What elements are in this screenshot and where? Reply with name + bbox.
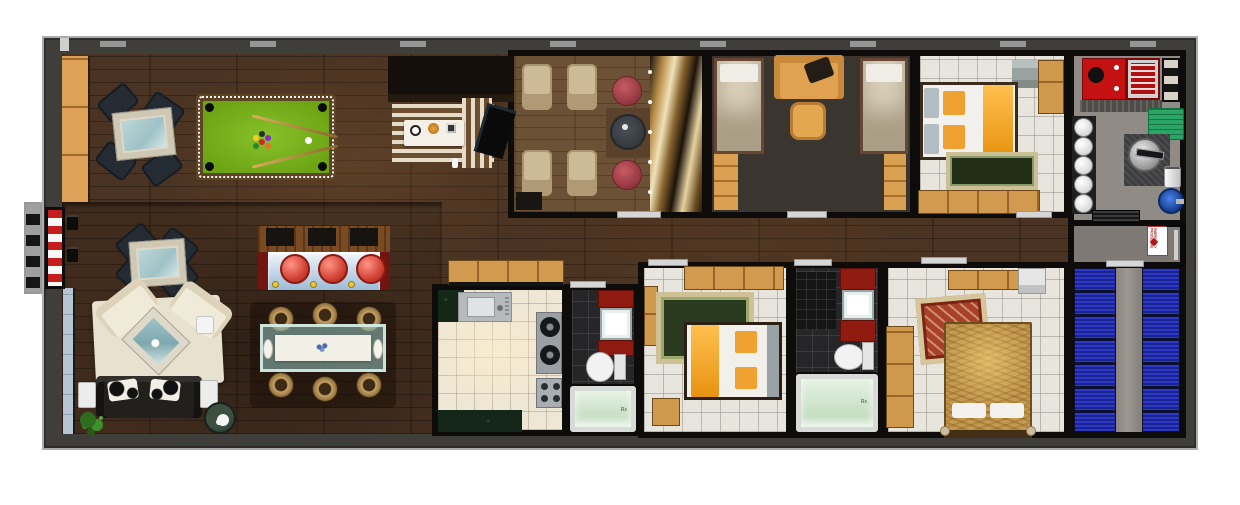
bar-mat [308, 228, 336, 246]
shower-brand-mark: Rx [861, 399, 867, 405]
indicator-dot [1114, 86, 1119, 91]
blue-pump [1158, 188, 1184, 214]
vanity-cabinet [840, 320, 876, 342]
wall-vent [1130, 41, 1156, 47]
footboard [944, 430, 1032, 438]
orange-throw [691, 325, 719, 397]
double-bed [920, 82, 1018, 160]
pool-pocket [318, 103, 327, 112]
pool-pocket [205, 103, 214, 112]
burner-icon [540, 317, 560, 337]
coaster-icon [348, 281, 355, 288]
door-threshold [794, 259, 832, 266]
door-threshold [570, 281, 606, 288]
tray-icon [446, 123, 456, 133]
tea-table [204, 402, 236, 434]
toilet [834, 344, 864, 370]
round-tank [1074, 194, 1093, 213]
door-slab [1174, 230, 1178, 260]
cowhide-cushion [107, 378, 139, 402]
nook-corner-sofa [388, 56, 514, 102]
red-ottoman [612, 160, 642, 190]
faucet-icon [497, 305, 503, 311]
pool-ball [253, 143, 259, 149]
bar-mat [350, 228, 378, 246]
headboard [767, 325, 779, 397]
round-tank [1074, 156, 1093, 175]
single-bed [714, 58, 764, 154]
door-threshold [617, 211, 661, 218]
red-bar-stool [318, 254, 348, 284]
window-strip [63, 288, 75, 434]
knob-icon [541, 383, 548, 390]
floor-plan: EMERGENCY PROCEDURE Rx Rx [0, 0, 1240, 505]
bedroom-rug [946, 152, 1038, 190]
card-table-glass [138, 248, 178, 279]
pool-table [196, 94, 336, 180]
kitchen-upper-cabinets [448, 260, 564, 286]
end-table [78, 382, 96, 408]
recliner-armchair [522, 64, 552, 110]
gilded-feature-wall [650, 56, 702, 212]
dark-vanity [796, 272, 836, 330]
pool-ball [259, 131, 265, 137]
round-tank [1074, 137, 1093, 156]
orange-ottoman [790, 102, 826, 140]
wall-cap [60, 38, 69, 51]
sink-bowl [467, 297, 495, 317]
burner-icon [540, 345, 560, 365]
platter-icon [373, 339, 383, 359]
red-grill-unit [1126, 58, 1160, 100]
orange-runner [884, 154, 906, 210]
potted-plant [80, 412, 96, 428]
wicker-chair [312, 376, 338, 402]
pool-ball [265, 135, 271, 141]
round-tank [1074, 118, 1093, 137]
indicator-dot [1114, 65, 1119, 70]
single-bed [860, 58, 908, 154]
wardrobe-cabinets [684, 266, 784, 290]
pool-pocket [205, 162, 214, 171]
shower: Rx [796, 374, 878, 432]
pool-ball [253, 135, 259, 141]
recliner-armchair [567, 64, 597, 110]
entry-hinge-icon [67, 215, 78, 230]
blue-rack-column [1142, 268, 1180, 432]
door-threshold [1016, 211, 1052, 218]
plate-icon [622, 124, 628, 130]
orange-cushion [943, 91, 965, 115]
pillow [924, 124, 939, 154]
pillow [924, 88, 939, 118]
bar-mat [266, 228, 294, 246]
card-table [112, 107, 177, 161]
double-bed [684, 322, 782, 400]
pool-ball [259, 139, 265, 145]
emergency-procedures-sign: EMERGENCY PROCEDURE [1147, 226, 1168, 256]
plate-icon [410, 125, 421, 136]
wall-vent [700, 41, 726, 47]
bathroom-sink [842, 290, 874, 320]
door-threshold [921, 257, 967, 264]
bedside-cabinet [1038, 60, 1064, 114]
pillow [866, 64, 902, 82]
red-ottoman [612, 76, 642, 106]
sideboard-cabinet [62, 56, 90, 202]
wall-vent [550, 41, 576, 47]
pillow [952, 403, 986, 418]
wall-vent [400, 41, 426, 47]
wall-vent [250, 41, 276, 47]
door-threshold [787, 211, 827, 218]
recliner-armchair [522, 150, 552, 196]
orange-runner [714, 154, 738, 210]
generator-dial [1088, 67, 1104, 83]
blue-rack-column [1074, 268, 1116, 432]
wardrobe [886, 326, 914, 428]
shelf [948, 270, 1020, 290]
recliner-armchair [567, 150, 597, 196]
red-bar-stool [356, 254, 386, 284]
entry-hazard-steps [45, 207, 65, 289]
pillow [990, 403, 1024, 418]
wall-appliance [1018, 268, 1046, 294]
bathroom-sink [600, 308, 632, 340]
door-threshold [1106, 260, 1144, 267]
stove-control-panel [536, 378, 562, 408]
coaster-icon [272, 281, 279, 288]
vanity-cabinet [598, 290, 634, 308]
orange-cushion [943, 125, 965, 149]
vanity-cabinet [840, 268, 876, 290]
pump-spout [1176, 199, 1184, 204]
pool-pocket [318, 162, 327, 171]
ladder-rack [1162, 58, 1180, 102]
wall-light-icon [648, 70, 652, 74]
floor-grate [1092, 210, 1140, 223]
lounge-cabinet [516, 192, 542, 210]
floral-centerpiece [315, 341, 329, 353]
toilet-tank [614, 354, 626, 380]
stove [536, 312, 562, 374]
wicker-chair [268, 372, 294, 398]
entry-tread-plate [24, 202, 42, 294]
orange-throw [983, 85, 1013, 157]
entry-hinge-icon [67, 247, 78, 262]
cowhide-cushion [149, 378, 181, 401]
pool-ball [265, 143, 271, 149]
orange-cushion [735, 367, 757, 389]
wall-vent [100, 41, 126, 47]
toilet-tank [862, 342, 874, 370]
side-table [196, 316, 214, 334]
candle-icon [452, 158, 458, 168]
shower-brand-mark: Rx [621, 407, 627, 413]
door-threshold [648, 259, 688, 266]
pillow [720, 64, 758, 82]
red-generator [1082, 58, 1126, 100]
coaster-icon [310, 281, 317, 288]
granite-counter [438, 410, 522, 432]
bowl-icon [428, 123, 439, 134]
bed-post [940, 426, 950, 436]
wicker-chair [356, 372, 382, 398]
drain-rack [505, 297, 509, 317]
orange-cushion [735, 331, 757, 353]
round-side-table [610, 114, 646, 150]
toilet [586, 352, 614, 382]
red-bar-stool [280, 254, 310, 284]
kitchen-sink-unit [458, 292, 512, 322]
wall-vent [850, 41, 876, 47]
card-table-glass [122, 117, 167, 151]
brocade-bed [944, 322, 1032, 432]
glass-dining-table [260, 324, 386, 372]
cue-ball [305, 137, 312, 144]
bench [652, 398, 680, 426]
shower: Rx [570, 386, 636, 432]
bed-post [1026, 426, 1036, 436]
teapot-icon [217, 414, 229, 426]
round-tank [1074, 175, 1093, 194]
white-cylinder [1164, 166, 1181, 188]
wall-vent [1000, 41, 1026, 47]
platter-icon [263, 339, 273, 359]
